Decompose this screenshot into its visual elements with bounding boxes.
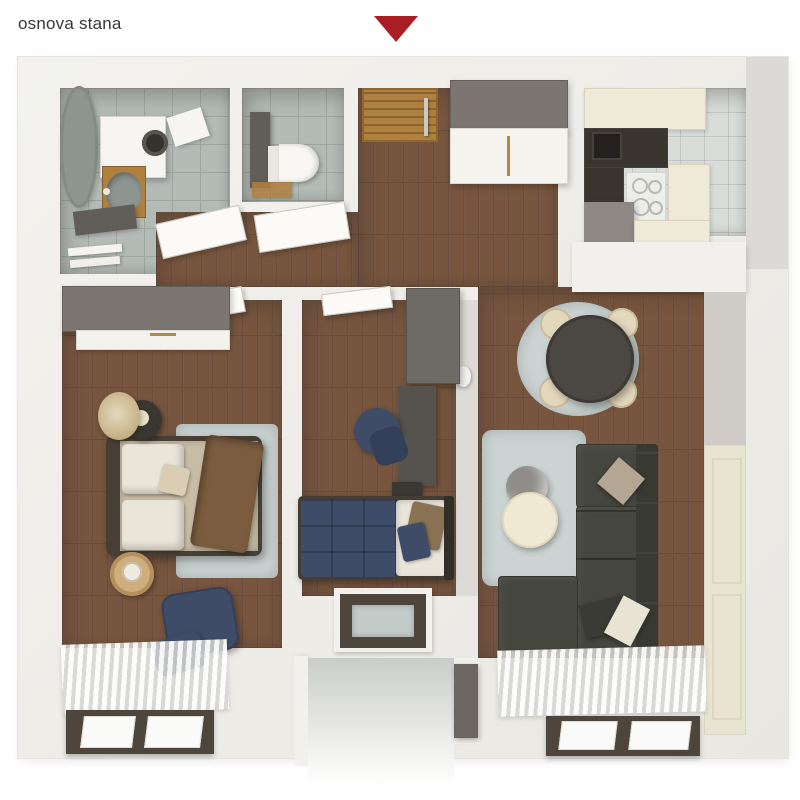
- single-bed-headboard: [444, 496, 454, 580]
- page-title: osnova stana: [18, 14, 122, 34]
- cooktop-burner: [649, 201, 663, 215]
- exterior-wall-face: [746, 57, 788, 269]
- entrance-arrow-icon: [374, 16, 418, 42]
- kitchen-sink: [592, 132, 622, 160]
- toilet-stool: [252, 182, 292, 198]
- faucet: [103, 188, 110, 195]
- living-window-pane: [558, 721, 618, 750]
- wall-panel-frame: [712, 594, 742, 720]
- bedroom-window-pane: [80, 716, 136, 748]
- bedroom-window-pane: [144, 716, 204, 748]
- sofa-ottoman: [498, 576, 578, 652]
- kids-window-glass: [352, 605, 414, 637]
- plant: [98, 392, 140, 440]
- living-wall-face: [704, 292, 746, 445]
- loggia-pillar: [454, 664, 478, 738]
- bathtub: [60, 86, 98, 208]
- bedroom-curtain: [61, 639, 229, 715]
- bedroom-wardrobe-top: [62, 286, 230, 332]
- wall-panel-frame: [712, 458, 742, 584]
- dining-table: [546, 315, 634, 403]
- wardrobe-handle: [150, 333, 176, 336]
- decor-plate: [122, 562, 142, 582]
- cooktop-burner: [632, 178, 648, 194]
- duvet: [301, 499, 399, 577]
- washing-machine-door: [142, 130, 168, 156]
- kitchen-bar: [572, 242, 746, 292]
- kitchen-cabinet-right: [668, 164, 710, 222]
- bed-pillow: [122, 500, 184, 550]
- cooktop-burner: [632, 198, 650, 216]
- floor-plan-screenshot: osnova stana: [0, 0, 800, 800]
- toilet-cabinet: [250, 112, 270, 188]
- loggia-wall: [294, 656, 308, 764]
- living-window-pane: [628, 721, 692, 750]
- loggia-floor: [308, 658, 454, 786]
- kids-wardrobe: [406, 288, 460, 384]
- coffee-table: [502, 492, 558, 548]
- kitchen-upper-cabinets: [584, 88, 706, 130]
- toilet: [279, 144, 319, 182]
- living-curtain: [497, 645, 707, 716]
- bed-cushion: [157, 463, 190, 496]
- wardrobe-handle: [507, 136, 510, 176]
- cooktop-burner: [648, 180, 662, 194]
- hall-wardrobe-top: [450, 80, 568, 132]
- entry-door-handle: [424, 98, 428, 136]
